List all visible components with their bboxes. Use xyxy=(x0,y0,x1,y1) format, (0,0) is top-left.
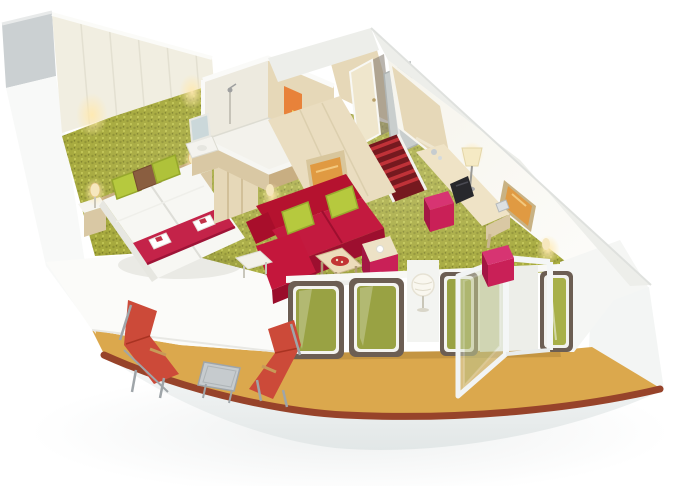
cup-icon xyxy=(377,246,384,253)
balcony-door-pouf xyxy=(482,245,514,287)
cabin-cutaway-render xyxy=(0,0,680,486)
sconce-lamp-icon xyxy=(266,184,274,196)
isometric-scene xyxy=(0,0,680,486)
paper-lantern-icon xyxy=(412,274,434,296)
window-panel-4 xyxy=(540,271,573,352)
chrome-item-icon xyxy=(431,149,437,155)
door-handle-icon xyxy=(372,98,376,102)
lantern-pedestal xyxy=(407,260,439,342)
shower-head-icon xyxy=(228,88,233,93)
mirror-icon xyxy=(190,114,210,142)
basin-icon xyxy=(197,145,207,151)
sconce-lamp-icon xyxy=(90,183,100,197)
desk-stool xyxy=(424,191,454,232)
red-tray xyxy=(331,256,349,266)
window-panel-2 xyxy=(349,278,404,357)
sconce-lamp-icon xyxy=(542,238,550,250)
